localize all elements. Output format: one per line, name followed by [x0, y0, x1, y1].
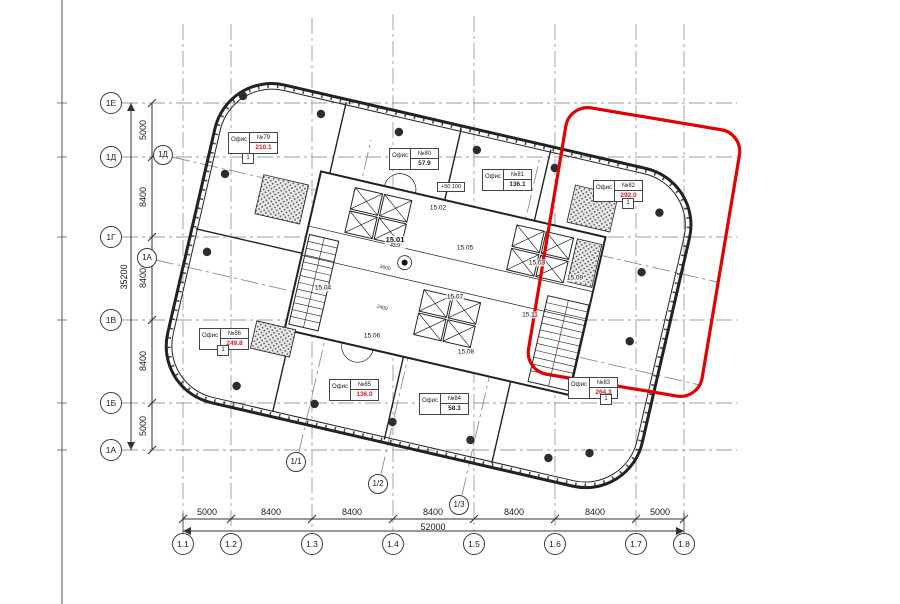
room-label-15-08: 15.08 [457, 348, 475, 355]
floor-plan-drawing [0, 0, 900, 604]
office-number: №81 [504, 170, 531, 180]
office-label-84: Офис №84 58.3 [419, 393, 469, 415]
dim-left-total: 35200 [119, 264, 129, 289]
axis-rotated-1-1: 1/1 [286, 452, 306, 472]
dim-left-4: 5000 [138, 416, 148, 436]
dim-bottom-6: 5000 [650, 507, 670, 517]
office-number: №86 [221, 329, 248, 339]
axis-bottom-1-7: 1.7 [625, 533, 647, 555]
office-label-79: Офис №79 210.1 [228, 132, 278, 154]
axis-bottom-1-5: 1.5 [463, 533, 485, 555]
office-number: №84 [441, 394, 468, 404]
dim-bottom-3: 8400 [423, 507, 443, 517]
dim-bottom-2: 8400 [342, 507, 362, 517]
dim-left-0: 5000 [138, 120, 148, 140]
dim-left-1: 8400 [138, 187, 148, 207]
office-area: 210.1 [250, 143, 277, 153]
room-label-15-02: 15.02 [429, 204, 447, 211]
office-word: Офис [390, 149, 411, 169]
office-number: №85 [351, 380, 378, 390]
axis-bottom-1-1: 1.1 [172, 533, 194, 555]
office-number: №79 [250, 133, 277, 143]
room-label-15-07: 15.07 [446, 293, 464, 300]
office-label-85: Офис №85 136.0 [329, 379, 379, 401]
office-word: Офис [569, 378, 590, 398]
office-label-82: Офис №82 292.0 [593, 180, 643, 202]
office-tag-79: 1 [242, 153, 254, 164]
axis-bottom-1-8: 1.8 [673, 533, 695, 555]
axis-left-1B: 1Б [100, 392, 122, 414]
office-number: №80 [411, 149, 438, 159]
office-tag-86: 1 [217, 345, 229, 356]
room-label-15-09: 15.09 [566, 274, 584, 281]
office-area: 136.1 [504, 180, 531, 190]
axis-bottom-1-2: 1.2 [220, 533, 242, 555]
dim-bottom-4: 8400 [504, 507, 524, 517]
office-area: 57.9 [411, 159, 438, 169]
axis-left-1D: 1Д [100, 146, 122, 168]
office-word: Офис [330, 380, 351, 400]
dim-bottom-1: 8400 [261, 507, 281, 517]
axis-rotated-1-3: 1/3 [449, 495, 469, 515]
axis-rotated-1-2: 1/2 [368, 474, 388, 494]
room-label-15-01: 15.01 43.9 [385, 236, 406, 250]
office-word: Офис [594, 181, 615, 201]
office-number: №82 [615, 181, 642, 191]
office-area: 136.0 [351, 390, 378, 400]
sheet-edge-line [57, 0, 67, 604]
axis-left-1A: 1А [100, 439, 122, 461]
dim-bottom-total: 52000 [420, 522, 445, 532]
office-label-80: Офис №80 57.9 [389, 148, 439, 170]
floor-plan-sheet: 1Е 1Д 1Г 1В 1Б 1А 1.1 1.2 1.3 1.4 1.5 1.… [0, 0, 900, 604]
dim-bottom-0: 5000 [197, 507, 217, 517]
dim-left-3: 8400 [138, 351, 148, 371]
room-label-15-04: 15.04 [314, 284, 332, 291]
axis-bottom-1-3: 1.3 [301, 533, 323, 555]
dim-left-2: 8400 [138, 268, 148, 288]
office-word: Офис [229, 133, 250, 153]
axis-rotated-1D: 1Д [153, 145, 173, 165]
room-label-15-03: 15.03 [528, 259, 546, 266]
dim-bottom-5: 8400 [585, 507, 605, 517]
axis-left-1V: 1В [100, 309, 122, 331]
office-word: Офис [420, 394, 441, 414]
axis-bottom-1-4: 1.4 [382, 533, 404, 555]
axis-left-1G: 1Г [100, 226, 122, 248]
office-word: Офис [483, 170, 504, 190]
office-tag-83: 1 [600, 394, 612, 405]
elevation-mark: +50.100 [437, 182, 465, 192]
office-area: 58.3 [441, 404, 468, 414]
axis-left-1E: 1Е [100, 92, 122, 114]
room-area: 43.9 [386, 244, 405, 250]
room-label-15-05: 15.05 [456, 244, 474, 251]
room-label-15-06: 15.06 [363, 332, 381, 339]
office-label-81: Офис №81 136.1 [482, 169, 532, 191]
office-number: №83 [590, 378, 617, 388]
office-tag-82: 1 [622, 198, 634, 209]
axis-bottom-1-6: 1.6 [544, 533, 566, 555]
room-label-15-11: 15.11 [521, 311, 539, 318]
axis-rotated-1A: 1А [137, 248, 157, 268]
